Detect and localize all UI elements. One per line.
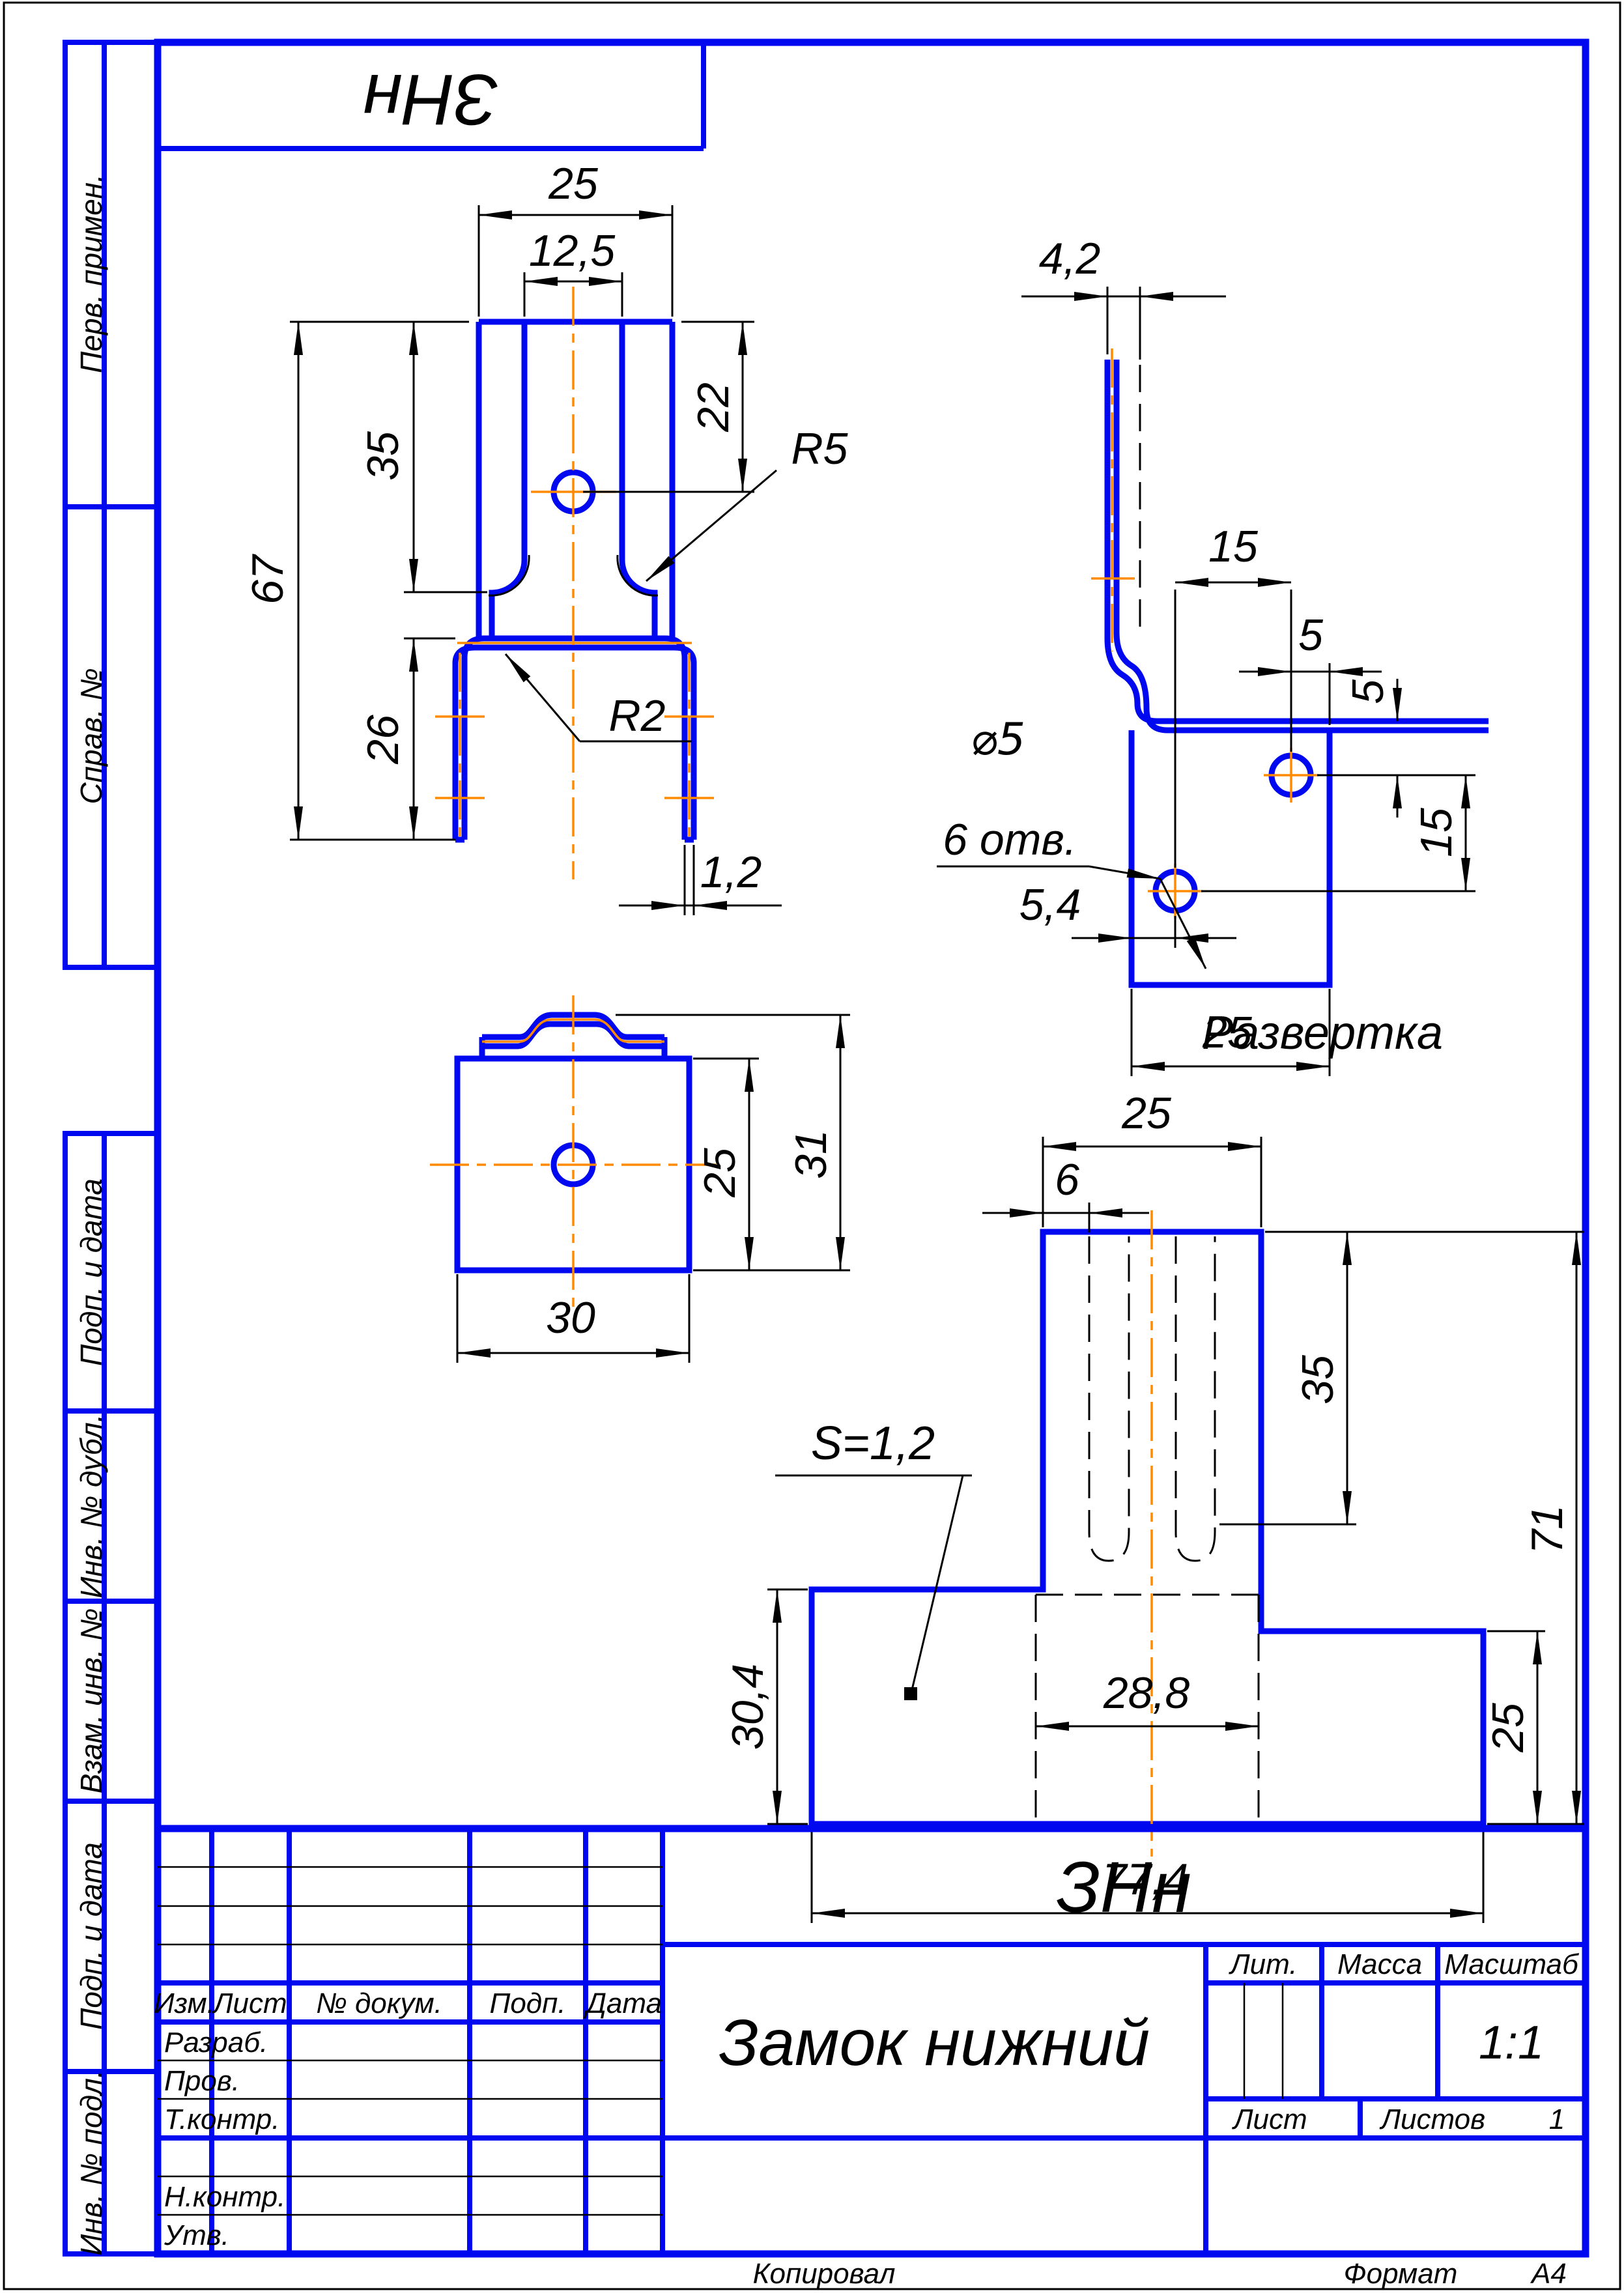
top-view: 25 31 30 [430, 995, 850, 1363]
format-value: А4 [1530, 2258, 1567, 2290]
sidebar-item-vzam-inv: Взам. инв. № [74, 1608, 108, 1794]
dim-front-35: 35 [358, 431, 408, 481]
col-data: Дата [583, 1987, 662, 2019]
dim-front-26: 26 [358, 715, 408, 765]
dim-flat-25: 25 [1121, 1089, 1171, 1138]
dim-flat-28-8: 28,8 [1103, 1668, 1190, 1718]
sidebar-item-perv-primen: Перв. примен. [74, 174, 108, 373]
dim-side-15h: 15 [1208, 522, 1258, 571]
row-tkontr: Т.контр. [164, 2103, 280, 2135]
doc-code-rotated: ЗНн [363, 59, 498, 139]
col-list: Лист [211, 1987, 287, 2019]
list-label: Лист [1231, 2103, 1307, 2135]
col-izm: Изм. [154, 1987, 215, 2019]
dim-flat-71: 71 [1522, 1505, 1572, 1554]
dim-side-5-4: 5,4 [1019, 880, 1081, 930]
flat-pattern-title: Развертка [1202, 1007, 1443, 1059]
side-view: 4,2 15 5 5 15 25 5,4 ⌀5 6 отв. [937, 234, 1489, 1076]
dim-top-31: 31 [786, 1130, 836, 1179]
massa-label: Масса [1337, 1948, 1422, 1980]
doc-code: ЗНн [1056, 1847, 1191, 1928]
dim-flat-25r: 25 [1483, 1703, 1533, 1753]
dim-top-30: 30 [546, 1293, 595, 1343]
flat-outline [812, 1232, 1483, 1824]
row-prov: Пров. [164, 2065, 240, 2097]
dim-front-r2: R2 [609, 691, 666, 741]
dim-side-15v: 15 [1412, 808, 1461, 857]
dim-flat-35: 35 [1293, 1355, 1343, 1404]
sidebar: Перв. примен. Справ. № Подп. и дата Инв.… [65, 42, 158, 2256]
sidebar-item-podp-data-1: Подп. и дата [74, 1178, 108, 1366]
label-hole-count: 6 отв. [943, 815, 1077, 864]
row-nkontr: Н.контр. [164, 2181, 285, 2213]
sidebar-item-podp-data-2: Подп. и дата [74, 1842, 108, 2030]
dim-top-25: 25 [695, 1148, 745, 1198]
listov-label: Листов [1379, 2103, 1485, 2135]
gost-drawing: ЗНн Перв. примен. Справ. № Подп. и дата … [0, 0, 1624, 2293]
drawing-sheet: ЗНн Перв. примен. Справ. № Подп. и дата … [0, 0, 1624, 2293]
sidebar-item-sprav-no: Справ. № [74, 668, 108, 804]
dim-side-5h: 5 [1298, 610, 1323, 660]
listov-value: 1 [1549, 2103, 1565, 2135]
format-label: Формат [1344, 2258, 1458, 2290]
row-utv: Утв. [164, 2219, 229, 2251]
dim-front-67: 67 [243, 554, 292, 605]
dim-flat-30-4: 30,4 [723, 1664, 773, 1750]
dim-flat-6: 6 [1055, 1155, 1079, 1204]
part-name: Замок нижний [719, 2006, 1150, 2079]
front-outline [455, 322, 694, 840]
dim-front-25: 25 [548, 159, 598, 208]
dim-side-5v: 5 [1343, 679, 1393, 704]
front-view: 25 12,5 22 35 67 26 R5 R2 1,2 [243, 159, 848, 915]
dim-front-12-5: 12,5 [529, 226, 616, 276]
col-podp: Подп. [489, 1987, 565, 2019]
lit-label: Лит. [1228, 1948, 1297, 1980]
title-block: ЗНн Замок нижний Изм. Лист № докум. Подп… [154, 1829, 1586, 2254]
row-razrab: Разраб. [164, 2027, 268, 2058]
copied-label: Копировал [753, 2258, 896, 2290]
bottom-labels: Копировал Формат А4 [753, 2258, 1567, 2290]
sidebar-item-inv-podl: Инв. № подл. [74, 2070, 108, 2255]
thickness-leader-dot [904, 1687, 917, 1700]
masshtab-label: Масштаб [1444, 1948, 1580, 1980]
dim-front-1-2: 1,2 [700, 847, 762, 897]
sidebar-item-inv-dubl: Инв. № дубл. [74, 1414, 108, 1599]
label-thickness: S=1,2 [811, 1417, 935, 1470]
dim-side-4-2: 4,2 [1039, 234, 1101, 283]
dim-front-22: 22 [689, 382, 738, 433]
flat-pattern-view: Развертка 25 6 35 71 30,4 25 28,8 77,4 S… [723, 1007, 1584, 1923]
dim-front-r5: R5 [791, 424, 848, 474]
scale-value: 1:1 [1479, 2017, 1544, 2069]
label-hole-dia: ⌀5 [971, 714, 1025, 765]
col-docnum: № докум. [316, 1987, 442, 2019]
